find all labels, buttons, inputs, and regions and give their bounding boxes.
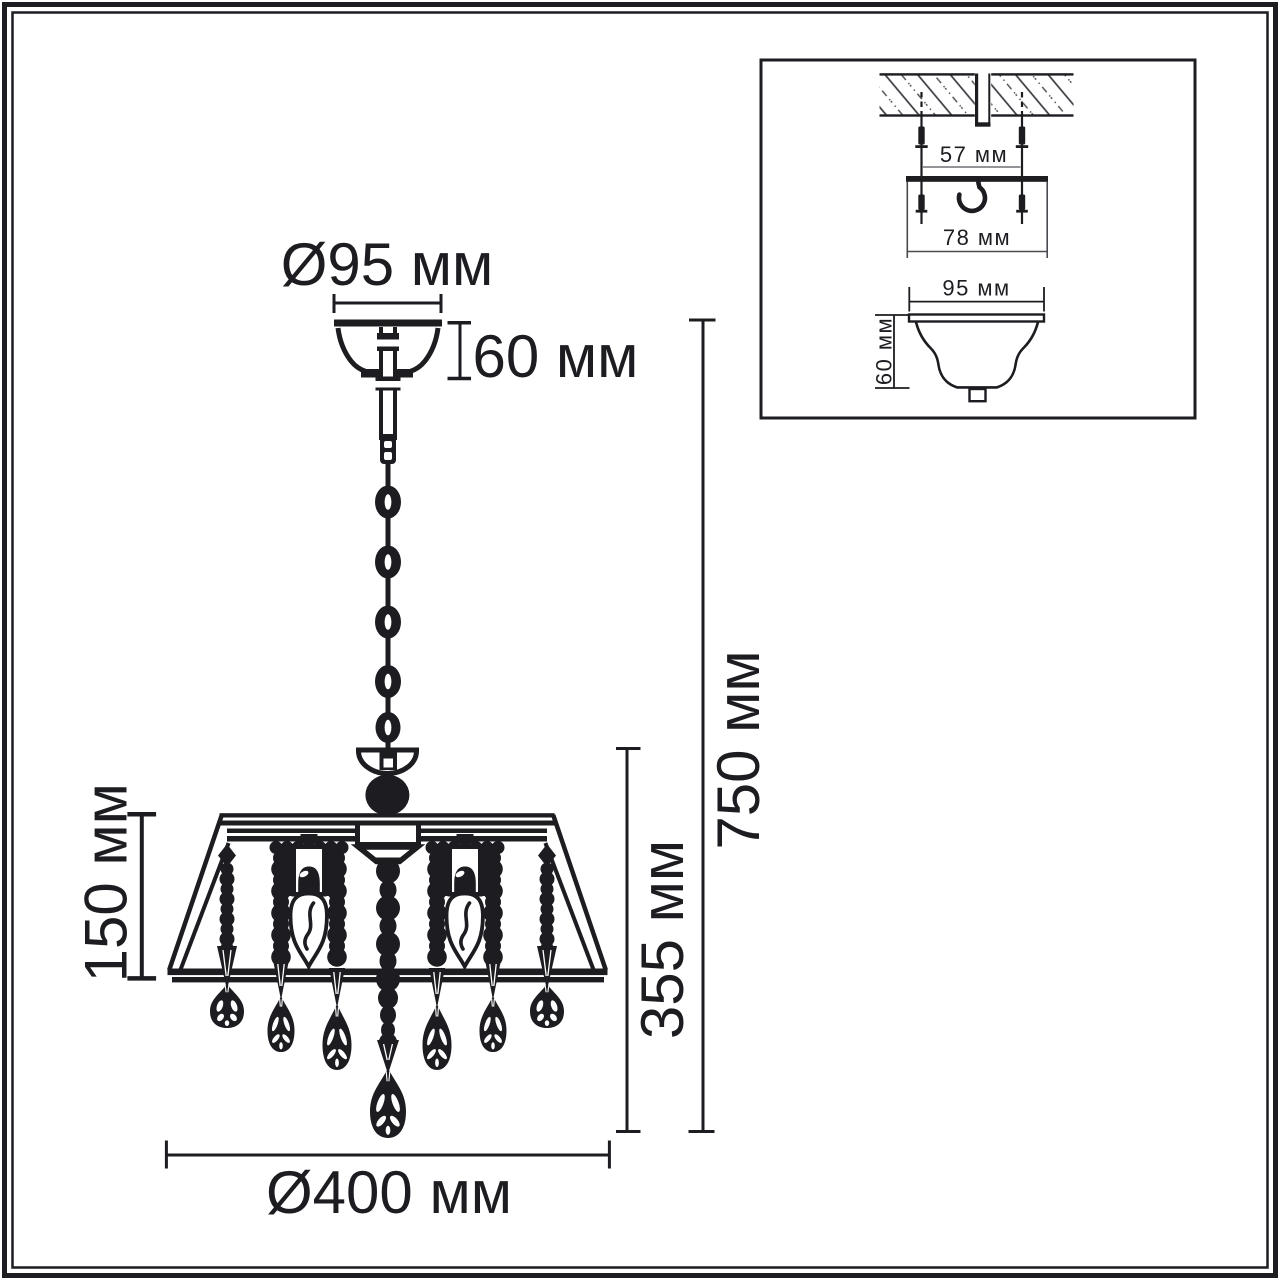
- svg-text:60 мм: 60 мм: [473, 323, 639, 390]
- svg-text:750 мм: 750 мм: [705, 650, 772, 849]
- svg-text:355 мм: 355 мм: [629, 840, 696, 1039]
- svg-text:57 мм: 57 мм: [940, 142, 1008, 167]
- svg-text:Ø400 мм: Ø400 мм: [266, 1159, 512, 1226]
- svg-text:78 мм: 78 мм: [943, 225, 1011, 250]
- svg-text:60 мм: 60 мм: [872, 317, 897, 385]
- svg-text:Ø95 мм: Ø95 мм: [281, 231, 494, 298]
- svg-text:95 мм: 95 мм: [942, 276, 1010, 301]
